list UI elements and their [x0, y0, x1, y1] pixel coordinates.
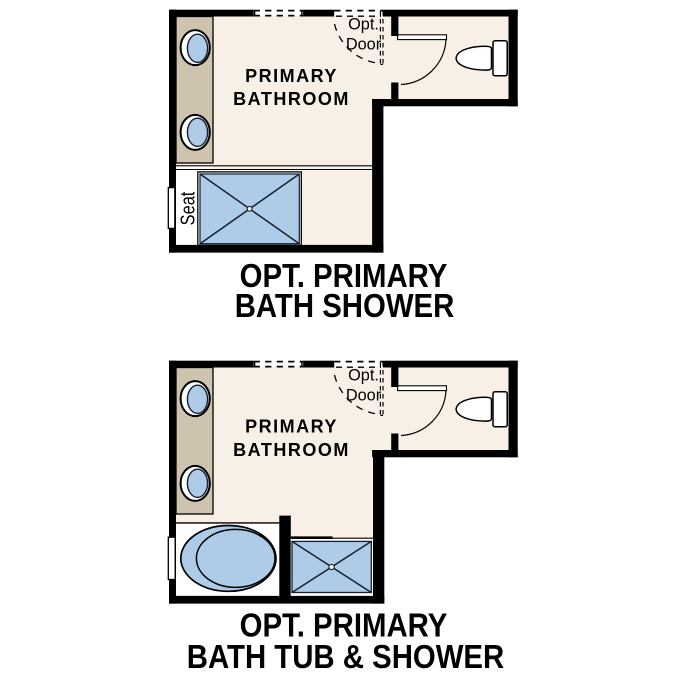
svg-text:BATH TUB & SHOWER: BATH TUB & SHOWER [187, 638, 504, 675]
svg-text:Door: Door [346, 387, 382, 405]
svg-text:PRIMARY: PRIMARY [245, 66, 338, 86]
svg-text:Seat: Seat [176, 192, 199, 226]
svg-text:Door: Door [346, 36, 382, 54]
svg-text:Opt.: Opt. [348, 16, 379, 34]
svg-text:BATHROOM: BATHROOM [233, 440, 350, 460]
svg-text:BATHROOM: BATHROOM [233, 89, 350, 109]
svg-text:BATH SHOWER: BATH SHOWER [235, 287, 455, 324]
svg-text:Opt.: Opt. [348, 367, 379, 385]
svg-text:PRIMARY: PRIMARY [245, 416, 338, 436]
